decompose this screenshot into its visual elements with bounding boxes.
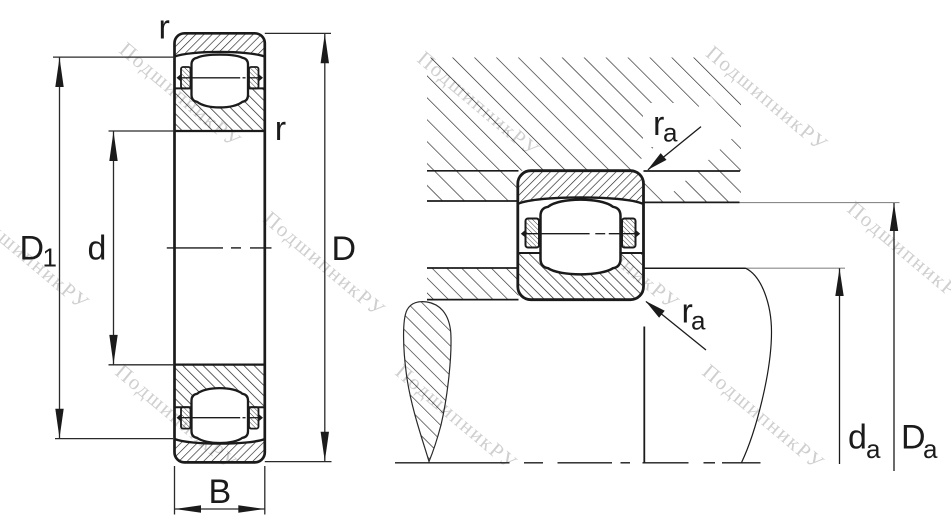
svg-text:a: a [691,306,706,336]
svg-text:D: D [20,229,45,267]
svg-text:a: a [866,434,881,464]
svg-text:r: r [275,110,286,148]
svg-text:d: d [88,229,107,267]
svg-text:D: D [901,419,926,457]
svg-text:d: d [848,419,867,457]
svg-text:D: D [332,230,357,268]
svg-text:1: 1 [43,243,57,273]
svg-text:a: a [663,118,678,148]
svg-text:a: a [923,434,938,464]
svg-text:r: r [159,9,170,47]
svg-text:B: B [209,473,232,511]
